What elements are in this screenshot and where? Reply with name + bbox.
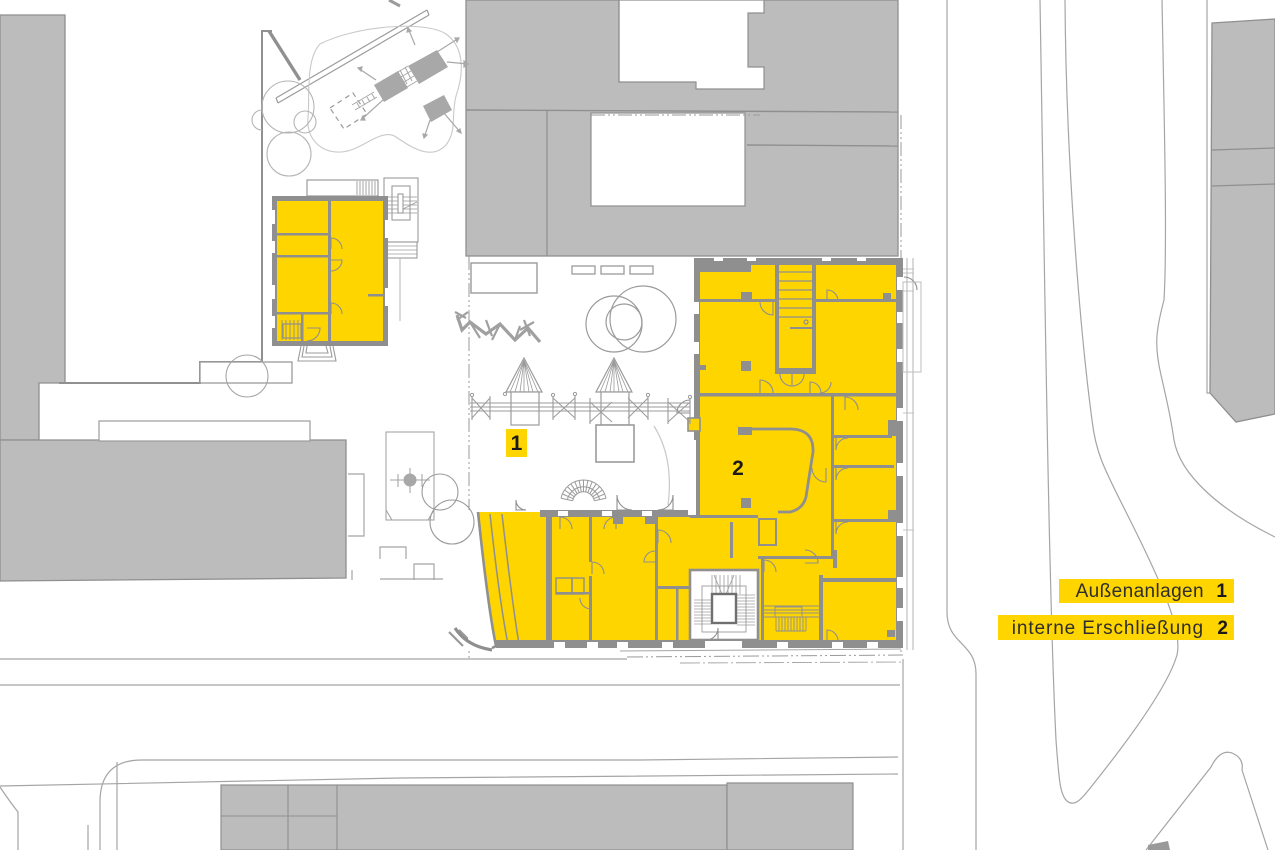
svg-text:2: 2 — [1217, 618, 1228, 639]
svg-text:1: 1 — [1216, 581, 1227, 602]
svg-text:1: 1 — [511, 432, 523, 455]
svg-text:interne Erschließung: interne Erschließung — [1012, 618, 1204, 639]
svg-text:Außenanlagen: Außenanlagen — [1076, 581, 1204, 602]
svg-text:2: 2 — [732, 457, 744, 480]
